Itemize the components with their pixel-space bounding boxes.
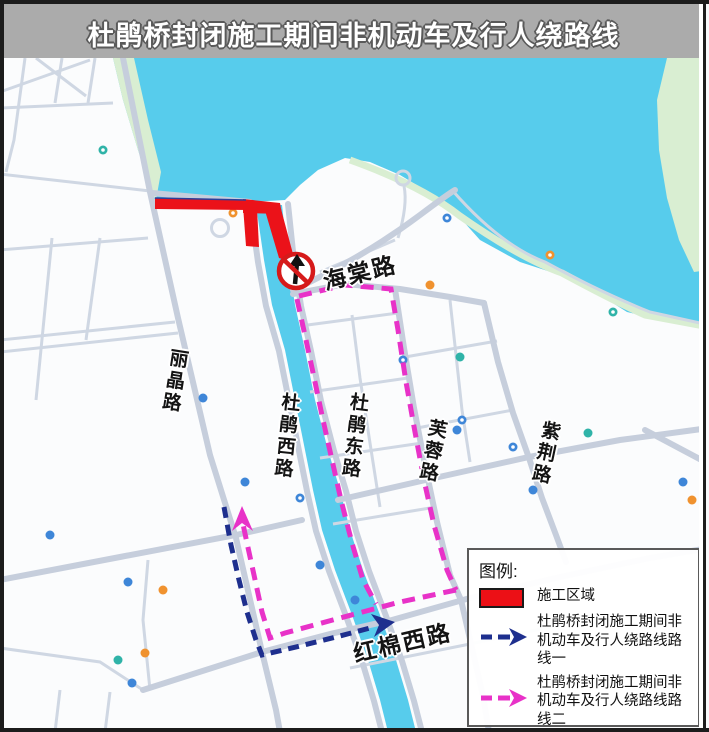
window-border-top	[0, 0, 709, 4]
legend-box: 图例: 施工区域 杜鹃桥封闭施工期间非机动车及行人绕路线路线一	[467, 548, 700, 727]
route-one-dashed-arrow-icon	[479, 627, 529, 647]
legend-item-label: 杜鹃桥封闭施工期间非机动车及行人绕路线路线二	[537, 674, 690, 730]
page-title: 杜鹃桥封闭施工期间非机动车及行人绕路线	[88, 14, 620, 58]
legend-item-label: 杜鹃桥封闭施工期间非机动车及行人绕路线路线一	[537, 613, 690, 669]
construction-area-swatch	[479, 588, 524, 608]
route-two-dashed-arrow-icon	[479, 688, 529, 708]
window-border-bottom	[0, 728, 709, 732]
window-border-left	[0, 0, 4, 732]
title-bar: 杜鹃桥封闭施工期间非机动车及行人绕路线	[4, 4, 703, 58]
legend-item-route-one: 杜鹃桥封闭施工期间非机动车及行人绕路线路线一	[479, 613, 690, 669]
legend-item-route-two: 杜鹃桥封闭施工期间非机动车及行人绕路线路线二	[479, 674, 690, 730]
legend-item-construction: 施工区域	[479, 586, 690, 608]
no-straight-ahead-sign-icon	[279, 254, 313, 288]
detour-map-window: 海棠路 丽晶路 杜鹃西路 杜鹃东路 芙蓉路 紫荆路 红棉西路 图例: 施工区域 …	[0, 0, 709, 732]
legend-item-label: 施工区域	[537, 587, 595, 606]
window-border-right	[703, 0, 706, 732]
legend-title: 图例:	[479, 557, 690, 582]
